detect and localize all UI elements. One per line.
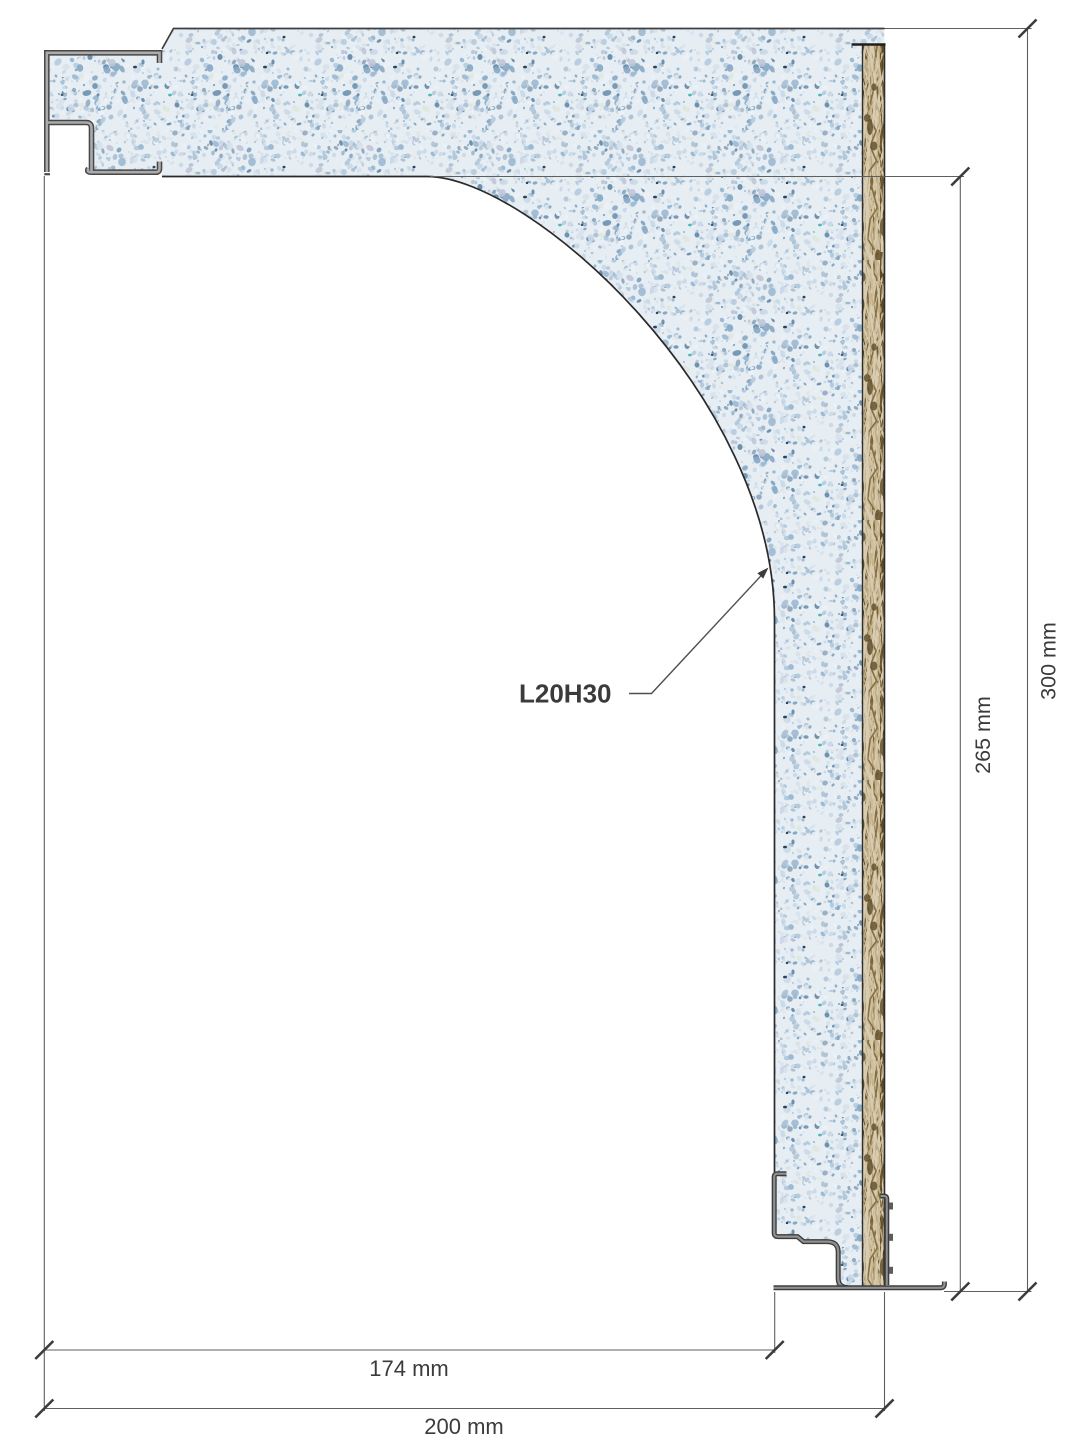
svg-text:200 mm: 200 mm <box>424 1414 503 1439</box>
svg-text:265 mm: 265 mm <box>971 696 995 774</box>
svg-text:300 mm: 300 mm <box>1037 622 1061 700</box>
svg-text:L20H30: L20H30 <box>519 679 612 709</box>
svg-text:174 mm: 174 mm <box>369 1356 448 1381</box>
